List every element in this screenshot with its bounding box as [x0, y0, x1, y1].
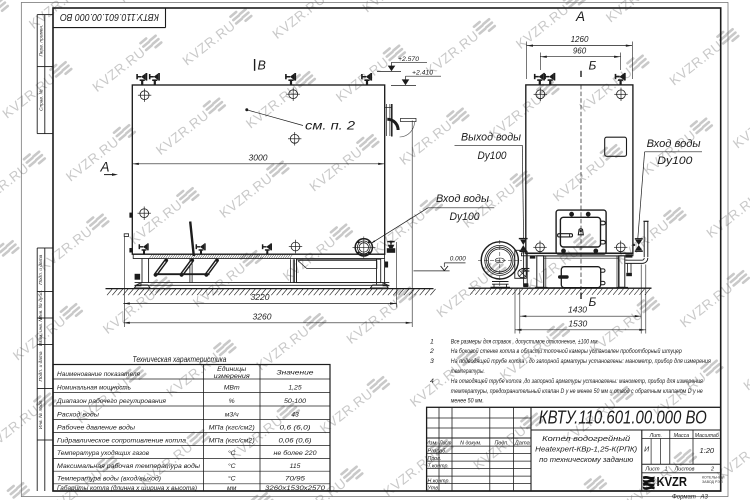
svg-text:Наименование показателя: Наименование показателя: [57, 371, 140, 378]
svg-text:Рабочее давление воды: Рабочее давление воды: [57, 424, 135, 432]
svg-text:1530: 1530: [568, 318, 587, 328]
svg-text:Пров.: Пров.: [428, 456, 442, 462]
svg-text:Б: Б: [589, 58, 597, 72]
svg-text:Инв. № дубл.: Инв. № дубл.: [38, 290, 44, 320]
svg-text:Масса: Масса: [674, 433, 690, 439]
svg-text:КВТУ.110.601.00.000 ВО: КВТУ.110.601.00.000 ВО: [60, 11, 159, 22]
svg-text:мм: мм: [227, 485, 237, 492]
svg-text:1430: 1430: [568, 305, 587, 315]
svg-text:Изм.: Изм.: [426, 441, 438, 447]
svg-text:N докум.: N докум.: [460, 441, 481, 447]
svg-text:Лист: Лист: [644, 467, 660, 473]
svg-text:менее 50 мм.: менее 50 мм.: [451, 398, 484, 405]
svg-text:3260: 3260: [253, 311, 272, 321]
svg-text:°С: °С: [228, 462, 236, 470]
svg-text:Подп.: Подп.: [495, 441, 509, 447]
svg-text:Справ. №: Справ. №: [39, 89, 45, 111]
svg-text:А3: А3: [700, 495, 709, 500]
svg-text:Б: Б: [589, 295, 597, 309]
svg-text:3: 3: [430, 358, 434, 365]
svg-text:Dy100: Dy100: [478, 150, 508, 162]
svg-text:МВт: МВт: [224, 385, 240, 392]
svg-text:Подп. и дата: Подп. и дата: [38, 254, 44, 284]
svg-text:43: 43: [291, 412, 299, 419]
svg-text:Лист: Лист: [439, 441, 452, 447]
svg-text:см. п. 2: см. п. 2: [305, 121, 356, 133]
svg-text:Единицы: Единицы: [217, 365, 246, 373]
svg-text:Значение: Значение: [277, 369, 314, 376]
svg-text:1260: 1260: [571, 35, 589, 44]
svg-text:2: 2: [429, 348, 434, 355]
svg-text:+2.570: +2.570: [398, 56, 420, 63]
svg-text:Техническая характеристика: Техническая характеристика: [133, 355, 228, 364]
svg-text:МПа (кгс/см2): МПа (кгс/см2): [209, 425, 255, 432]
svg-text:А: А: [575, 9, 585, 24]
svg-text:Утв.: Утв.: [428, 486, 440, 492]
svg-text:KVZR: KVZR: [657, 475, 688, 489]
svg-text:В: В: [258, 59, 266, 73]
svg-text:960: 960: [573, 46, 587, 55]
svg-text:Температура воды (вход/выход): Температура воды (вход/выход): [57, 474, 161, 482]
svg-text:КВТУ.110.601.00.000 ВО: КВТУ.110.601.00.000 ВО: [539, 407, 707, 427]
svg-text:115: 115: [290, 463, 301, 470]
svg-text:м3/ч: м3/ч: [225, 412, 239, 419]
svg-text:Формат: Формат: [672, 495, 696, 500]
svg-text:Вход воды: Вход воды: [436, 193, 489, 205]
svg-text:0,6 (6,0): 0,6 (6,0): [280, 425, 311, 432]
svg-text:Максимальная рабочая температу: Максимальная рабочая температура воды: [57, 462, 200, 470]
svg-text:1,25: 1,25: [288, 385, 301, 392]
svg-text:1: 1: [664, 467, 667, 473]
svg-text:Дата: Дата: [514, 441, 530, 447]
svg-text:%: %: [229, 398, 235, 405]
svg-text:3220: 3220: [251, 292, 270, 302]
svg-text:На боковой стенке котла в обла: На боковой стенке котла в области топочн…: [451, 347, 682, 355]
svg-text:Н.контр.: Н.контр.: [428, 478, 450, 484]
svg-text:по техническому заданию: по техническому заданию: [539, 455, 634, 464]
svg-text:ЗАВОД РЭП: ЗАВОД РЭП: [702, 480, 723, 484]
svg-text:Котел водогрейный: Котел водогрейный: [542, 434, 630, 443]
svg-text:температуры.: температуры.: [451, 368, 485, 375]
svg-text:70/95: 70/95: [285, 475, 305, 482]
svg-text:не более 220: не более 220: [274, 449, 317, 457]
svg-text:°С: °С: [228, 449, 236, 457]
svg-text:Расход воды: Расход воды: [57, 411, 99, 419]
svg-text:Dy100: Dy100: [657, 155, 693, 167]
svg-text:На подводящей трубе котла ,: На подводящей трубе котла , до запорной …: [451, 357, 711, 365]
svg-text:Т.контр.: Т.контр.: [428, 463, 449, 469]
svg-text:Номинальная мощность: Номинальная мощность: [57, 385, 131, 392]
svg-text:Диапазон рабочего регулировани: Диапазон рабочего регулирования: [56, 397, 166, 405]
svg-text:0.000: 0.000: [450, 257, 467, 263]
svg-text:КОТЕЛЬНЫЙ: КОТЕЛЬНЫЙ: [702, 476, 725, 480]
svg-text:4: 4: [430, 378, 434, 385]
svg-text:Выход воды: Выход воды: [461, 132, 521, 144]
svg-text:Гидравлическое сопротивление к: Гидравлическое сопротивление котла: [57, 437, 186, 445]
svg-text:Разраб.: Разраб.: [428, 448, 447, 454]
svg-text:Лит.: Лит.: [649, 433, 662, 439]
svg-text:50-100: 50-100: [284, 398, 306, 405]
svg-text:1:20: 1:20: [699, 446, 714, 455]
svg-text:МПа (кгс/см2): МПа (кгс/см2): [209, 438, 255, 445]
svg-text:Подп. и дата: Подп. и дата: [38, 351, 44, 381]
svg-text:1: 1: [430, 338, 434, 345]
svg-text:0,06 (0,6): 0,06 (0,6): [279, 438, 312, 445]
svg-text:3000: 3000: [249, 152, 268, 162]
svg-text:Взам. инв. №: Взам. инв. №: [38, 316, 44, 346]
svg-text:Температура уходящих газов: Температура уходящих газов: [57, 449, 149, 457]
svg-text:А: А: [100, 160, 110, 175]
svg-text:температуры, предохранительный: температуры, предохранительный клапан D …: [451, 387, 703, 395]
svg-text:°С: °С: [228, 474, 236, 482]
svg-text:2: 2: [710, 467, 714, 473]
svg-text:Вход воды: Вход воды: [647, 138, 701, 150]
svg-text:измерения: измерения: [214, 373, 250, 380]
svg-text:+2.410: +2.410: [412, 70, 434, 77]
svg-text:Инв. № подл.: Инв. № подл.: [38, 399, 44, 429]
svg-text:Габариты котла (длинна х ширин: Габариты котла (длинна х ширина х высота…: [57, 484, 197, 492]
svg-text:Масштаб: Масштаб: [695, 433, 720, 439]
svg-text:На отводящей трубе котла ,до з: На отводящей трубе котла ,до запорной ар…: [451, 377, 703, 385]
svg-text:Heatexpert-КВр-1,25-К(РПК): Heatexpert-КВр-1,25-К(РПК): [535, 444, 637, 453]
svg-text:Все размеры для справок , допу: Все размеры для справок , допустимое отк…: [451, 337, 599, 345]
svg-text:3260х1530х2570: 3260х1530х2570: [265, 485, 325, 492]
svg-text:Перв. примен.: Перв. примен.: [39, 25, 45, 57]
svg-text:Dy100: Dy100: [450, 211, 481, 223]
svg-text:Листов: Листов: [673, 467, 694, 473]
